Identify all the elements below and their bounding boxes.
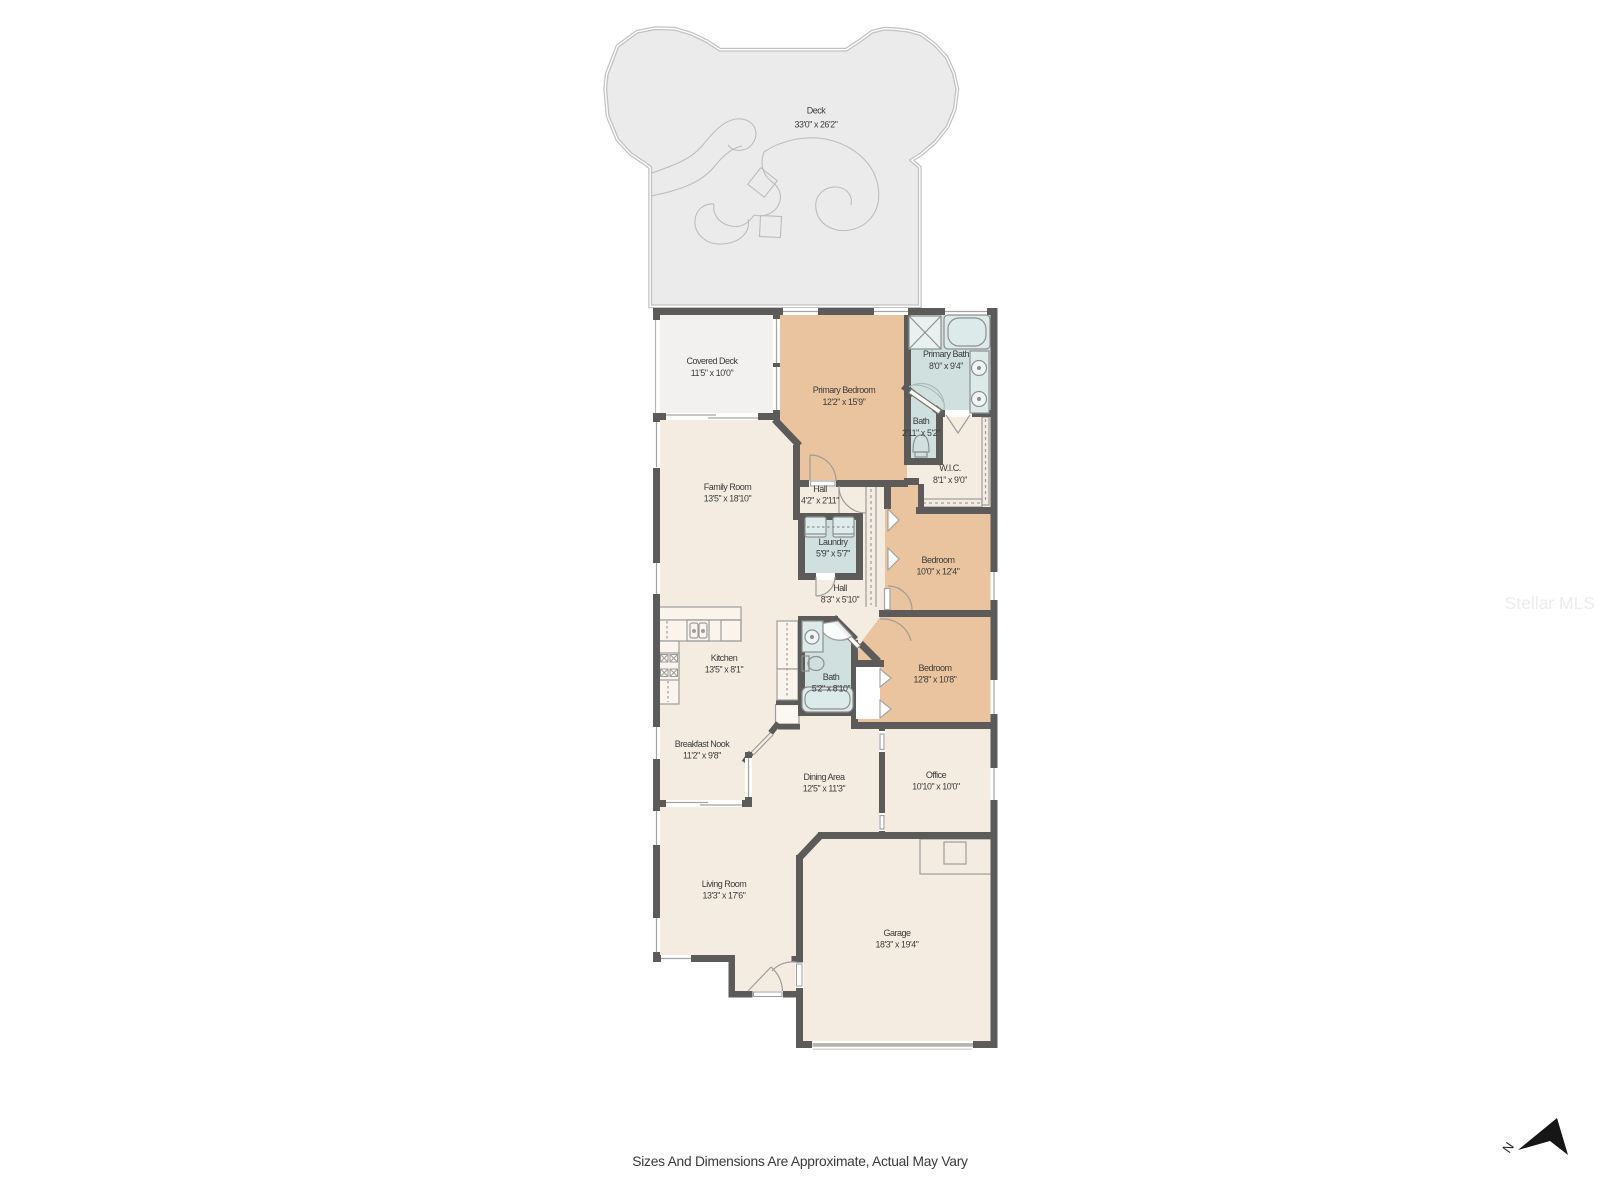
- svg-text:8'3" x 5'10": 8'3" x 5'10": [821, 595, 860, 605]
- svg-text:2'11" x 5'2": 2'11" x 5'2": [902, 428, 940, 438]
- svg-text:Hall: Hall: [833, 583, 847, 593]
- svg-text:Deck: Deck: [807, 106, 827, 116]
- svg-text:Kitchen: Kitchen: [711, 653, 738, 663]
- svg-text:Laundry: Laundry: [818, 537, 848, 547]
- svg-text:Bedroom: Bedroom: [918, 663, 951, 673]
- svg-text:W.I.C.: W.I.C.: [939, 463, 961, 473]
- svg-text:5'9" x 5'7": 5'9" x 5'7": [816, 549, 850, 559]
- svg-text:5'2" x 8'10": 5'2" x 8'10": [812, 684, 851, 694]
- svg-text:Hall: Hall: [813, 484, 827, 494]
- svg-text:11'5" x 10'0": 11'5" x 10'0": [691, 368, 734, 378]
- svg-text:Breakfast Nook: Breakfast Nook: [675, 739, 731, 749]
- svg-text:Office: Office: [926, 770, 947, 780]
- svg-text:13'5" x 8'1": 13'5" x 8'1": [705, 665, 744, 675]
- svg-text:10'0" x 12'4": 10'0" x 12'4": [916, 567, 959, 577]
- svg-text:Dining Area: Dining Area: [803, 772, 845, 782]
- svg-text:8'1" x 9'0": 8'1" x 9'0": [933, 475, 967, 485]
- svg-text:Primary Bedroom: Primary Bedroom: [813, 385, 876, 395]
- svg-text:8'0" x 9'4": 8'0" x 9'4": [929, 361, 963, 371]
- svg-text:Living Room: Living Room: [702, 879, 747, 889]
- svg-text:Primary Bath: Primary Bath: [923, 349, 970, 359]
- svg-text:Bath: Bath: [823, 672, 840, 682]
- svg-text:33'0" x 26'2": 33'0" x 26'2": [794, 120, 837, 130]
- svg-text:10'10" x 10'0": 10'10" x 10'0": [912, 782, 960, 792]
- svg-text:18'3" x 19'4": 18'3" x 19'4": [875, 940, 918, 950]
- svg-text:Covered Deck: Covered Deck: [686, 356, 738, 366]
- svg-text:12'8" x 10'8": 12'8" x 10'8": [913, 675, 956, 685]
- svg-text:Bedroom: Bedroom: [921, 555, 954, 565]
- svg-text:12'2" x 15'9": 12'2" x 15'9": [822, 397, 865, 407]
- svg-text:Bath: Bath: [913, 416, 930, 426]
- svg-text:13'5" x 18'10": 13'5" x 18'10": [704, 494, 752, 504]
- svg-text:Sizes And Dimensions Are Appro: Sizes And Dimensions Are Approximate, Ac…: [632, 1154, 968, 1169]
- svg-text:Family Room: Family Room: [704, 482, 752, 492]
- svg-text:Stellar MLS: Stellar MLS: [1505, 593, 1595, 613]
- svg-text:Garage: Garage: [883, 928, 911, 938]
- svg-text:12'5" x 11'3": 12'5" x 11'3": [803, 784, 846, 794]
- svg-text:4'2" x 2'11": 4'2" x 2'11": [801, 496, 839, 506]
- svg-text:11'2" x 9'8": 11'2" x 9'8": [683, 751, 721, 761]
- svg-text:13'3" x 17'6": 13'3" x 17'6": [702, 891, 745, 901]
